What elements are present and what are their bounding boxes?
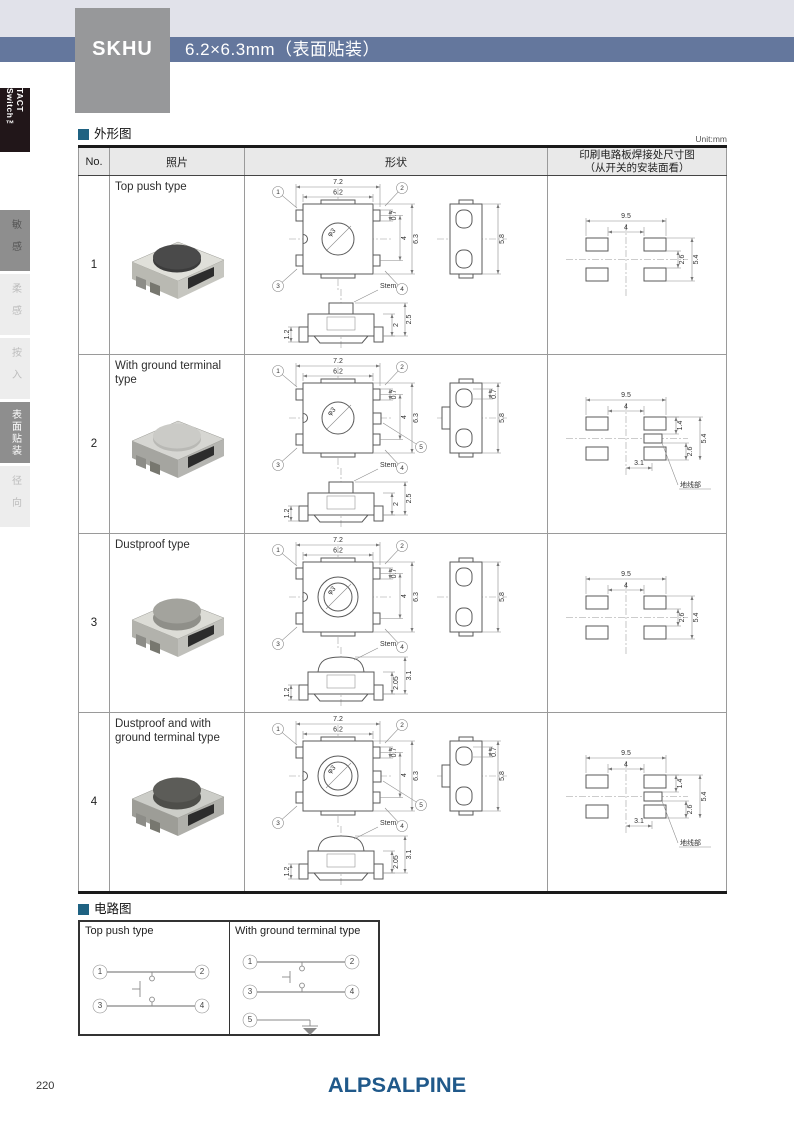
dim-label: Stem: [380, 283, 397, 290]
datasheet-page: 6.2×6.3mm（表面贴装） SKHU TACT Switch™ 敏感柔感按入…: [0, 0, 794, 1123]
dim-label: 5: [419, 802, 423, 809]
col-header-pcb-line2: （从开关的安装面看）: [585, 162, 690, 175]
model-name: SKHU: [75, 37, 170, 62]
dim-label: 1.2: [284, 867, 291, 877]
dim-label: 6.2: [333, 369, 343, 376]
dim-label: 7.2: [333, 358, 343, 365]
alps-alpine-logo: ALPSALPINE: [0, 1074, 794, 1098]
dim-label: 1.4: [677, 421, 684, 431]
photo-cell: Dustproof and with ground terminal type: [110, 713, 245, 891]
dim-label: 5.8: [499, 234, 506, 244]
type-label: Dustproof and with ground terminal type: [115, 717, 242, 746]
dim-label: 4: [401, 773, 408, 777]
pcb-pattern-drawing: 9.541.42.65.43.1地线部: [548, 355, 727, 531]
dim-label: 9.5: [621, 571, 631, 578]
circuit-cell-1: Top push type1234: [80, 922, 230, 1034]
dim-label: 5.4: [701, 434, 708, 444]
shape-drawing: φ37.26.20.746.312345.8Stem1.222.5: [245, 176, 548, 352]
dim-label: 9.5: [621, 750, 631, 757]
circuit-title-text: 电路图: [94, 903, 132, 915]
dim-label: 3: [98, 1001, 103, 1010]
dim-label: 2: [400, 185, 404, 192]
pcb-pattern-drawing: 9.541.42.65.43.1地线部: [548, 713, 727, 889]
shape-cell: φ37.26.20.746.3123450.75.8Stem1.222.5: [245, 355, 548, 533]
dim-label: 4: [624, 404, 628, 411]
dim-label: 6.3: [413, 234, 420, 244]
shape-cell: φ37.26.20.746.312345.8Stem1.222.5: [245, 176, 548, 354]
unit-label: Unit:mm: [695, 134, 727, 144]
col-header-shape: 形状: [245, 148, 548, 175]
dim-label: 7.2: [333, 716, 343, 723]
shape-cell: φ37.26.20.746.312345.8Stem1.22.053.1: [245, 534, 548, 712]
dim-label: 地线部: [680, 838, 701, 847]
shape-drawing: φ37.26.20.746.312345.8Stem1.22.053.1: [245, 534, 548, 710]
row-number: 3: [78, 534, 110, 712]
dim-label: 0.7: [491, 389, 498, 399]
dim-label: 5.8: [499, 771, 506, 781]
dim-label: 地线部: [680, 480, 701, 489]
dim-label: 1.4: [677, 779, 684, 789]
dim-label: 1: [276, 547, 280, 554]
dim-label: Stem: [380, 641, 397, 648]
category-tabs: 敏感柔感按入表面贴装径向: [0, 210, 30, 530]
dim-label: 2.6: [679, 613, 686, 623]
dim-label: 2.5: [406, 315, 413, 325]
col-header-pcb: 印刷电路板焊接处尺寸图 （从开关的安装面看）: [548, 148, 727, 175]
sidebar-tab-1: 敏感: [0, 210, 30, 271]
dim-label: Stem: [380, 820, 397, 827]
dim-label: 2.05: [393, 676, 400, 690]
dim-label: 7.2: [333, 537, 343, 544]
dim-label: 2: [393, 323, 400, 327]
dim-label: Stem: [380, 462, 397, 469]
pcb-cell: 9.542.65.4: [548, 176, 727, 354]
circuit-cell-title: With ground terminal type: [235, 925, 360, 937]
dim-label: 4: [624, 583, 628, 590]
dim-label: 5.8: [499, 413, 506, 423]
dim-label: 1: [276, 726, 280, 733]
size-label: 6.2×6.3mm（表面贴装）: [185, 37, 380, 62]
table-row-4: 4Dustproof and with ground terminal type…: [78, 713, 727, 891]
dim-label: 6.2: [333, 548, 343, 555]
dim-label: 4: [401, 415, 408, 419]
section-bullet-icon: [78, 129, 89, 140]
outline-table: No. 照片 形状 印刷电路板焊接处尺寸图 （从开关的安装面看） 1Top pu…: [78, 145, 727, 894]
dim-label: 6.2: [333, 190, 343, 197]
dim-label: 2: [350, 957, 355, 966]
outline-section-title: 外形图: [78, 128, 132, 140]
dim-label: 4: [624, 762, 628, 769]
dim-label: 6.2: [333, 727, 343, 734]
dim-label: 3: [276, 283, 280, 290]
sidebar-tab-5: 径向: [0, 466, 30, 527]
col-header-pcb-line1: 印刷电路板焊接处尺寸图: [579, 149, 695, 162]
model-box: SKHU: [75, 8, 170, 113]
product-photo: [110, 534, 245, 710]
dim-label: 4: [401, 594, 408, 598]
dim-label: 9.5: [621, 213, 631, 220]
dim-label: 4: [400, 465, 404, 472]
col-header-photo: 照片: [110, 148, 245, 175]
dim-label: 3.1: [634, 460, 644, 467]
dim-label: 3: [276, 462, 280, 469]
circuit-drawing: 12345: [230, 936, 375, 1036]
shape-cell: φ37.26.20.746.3123450.75.8Stem1.22.053.1: [245, 713, 548, 891]
dim-label: 3: [276, 641, 280, 648]
product-photo: [110, 176, 245, 352]
photo-cell: With ground terminal type: [110, 355, 245, 533]
table-row-1: 1Top push typeφ37.26.20.746.312345.8Stem…: [78, 176, 727, 355]
dim-label: 4: [401, 236, 408, 240]
dim-label: 5: [248, 1015, 253, 1024]
circuit-cell-title: Top push type: [85, 925, 154, 937]
dim-label: 3.1: [406, 850, 413, 860]
table-row-3: 3Dustproof typeφ37.26.20.746.312345.8Ste…: [78, 534, 727, 713]
dim-label: 4: [400, 644, 404, 651]
circuit-section-title: 电路图: [78, 903, 132, 915]
table-row-2: 2With ground terminal typeφ37.26.20.746.…: [78, 355, 727, 534]
dim-label: 1: [248, 957, 253, 966]
pcb-pattern-drawing: 9.542.65.4: [548, 534, 727, 710]
dim-label: 2.6: [687, 447, 694, 457]
dim-label: 0.7: [491, 747, 498, 757]
type-label: Top push type: [115, 180, 242, 194]
dim-label: 6.3: [413, 771, 420, 781]
dim-label: 2: [393, 502, 400, 506]
dim-label: 1: [98, 967, 103, 976]
dim-label: 6.3: [413, 413, 420, 423]
dim-label: 5.4: [693, 255, 700, 265]
sidebar-tab-2: 柔感: [0, 274, 30, 335]
dim-label: 1.2: [284, 509, 291, 519]
pcb-cell: 9.541.42.65.43.1地线部: [548, 355, 727, 533]
dim-label: 2.05: [393, 855, 400, 869]
dim-label: 3: [276, 820, 280, 827]
dim-label: 4: [624, 225, 628, 232]
dim-label: 9.5: [621, 392, 631, 399]
row-number: 1: [78, 176, 110, 354]
pcb-cell: 9.541.42.65.43.1地线部: [548, 713, 727, 891]
dim-label: 2: [400, 543, 404, 550]
photo-cell: Dustproof type: [110, 534, 245, 712]
type-label: With ground terminal type: [115, 359, 242, 388]
dim-label: 7.2: [333, 179, 343, 186]
dim-label: 4: [400, 823, 404, 830]
sidebar-tab-4: 表面贴装: [0, 402, 30, 463]
circuit-cell-2: With ground terminal type12345: [230, 922, 378, 1034]
table-header-row: No. 照片 形状 印刷电路板焊接处尺寸图 （从开关的安装面看）: [78, 148, 727, 176]
dim-label: 1.2: [284, 330, 291, 340]
dim-label: 1.2: [284, 688, 291, 698]
shape-drawing: φ37.26.20.746.3123450.75.8Stem1.222.5: [245, 355, 548, 531]
photo-cell: Top push type: [110, 176, 245, 354]
circuit-diagram-box: Top push type1234With ground terminal ty…: [78, 920, 380, 1036]
dim-label: 5.4: [693, 613, 700, 623]
dim-label: 4: [400, 286, 404, 293]
col-header-no: No.: [78, 148, 110, 175]
dim-label: 5.8: [499, 592, 506, 602]
dim-label: 1: [276, 368, 280, 375]
pcb-pattern-drawing: 9.542.65.4: [548, 176, 727, 352]
dim-label: 2.6: [679, 255, 686, 265]
dim-label: 2: [400, 722, 404, 729]
series-label: TACT Switch™: [0, 88, 30, 152]
outline-title-text: 外形图: [94, 128, 132, 140]
dim-label: 5.4: [701, 792, 708, 802]
dim-label: 3.1: [406, 671, 413, 681]
pcb-cell: 9.542.65.4: [548, 534, 727, 712]
dim-label: 4: [200, 1001, 205, 1010]
row-number: 4: [78, 713, 110, 891]
dim-label: 1: [276, 189, 280, 196]
circuit-drawing: 1234: [80, 936, 225, 1036]
dim-label: 2: [400, 364, 404, 371]
shape-drawing: φ37.26.20.746.3123450.75.8Stem1.22.053.1: [245, 713, 548, 889]
row-number: 2: [78, 355, 110, 533]
dim-label: 2.5: [406, 494, 413, 504]
sidebar-tab-3: 按入: [0, 338, 30, 399]
dim-label: 3: [248, 987, 253, 996]
dim-label: 2.6: [687, 805, 694, 815]
dim-label: 5: [419, 444, 423, 451]
dim-label: 2: [200, 967, 205, 976]
dim-label: 6.3: [413, 592, 420, 602]
dim-label: 4: [350, 987, 355, 996]
section-bullet-icon: [78, 904, 89, 915]
dim-label: 3.1: [634, 818, 644, 825]
type-label: Dustproof type: [115, 538, 242, 552]
